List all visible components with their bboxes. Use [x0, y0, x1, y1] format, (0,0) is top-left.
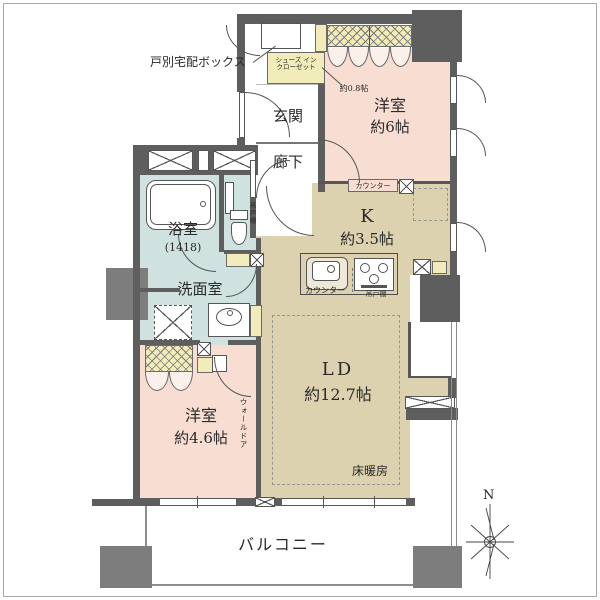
- pillar-bottom-left: [100, 546, 152, 588]
- wall-right-d: [450, 252, 457, 275]
- burner: [360, 263, 370, 273]
- wall-door-label: ウォールドア: [235, 390, 247, 456]
- floor-heating-label: 床暖房: [346, 465, 394, 479]
- room-ld-bay: [410, 378, 450, 398]
- bathtub-drain: [200, 201, 206, 207]
- genkan-tile-line: [256, 84, 318, 85]
- refrigerator-space: [413, 188, 448, 221]
- pillar-left: [106, 268, 148, 320]
- kitchen-faucet: [327, 265, 335, 273]
- wall-washroom-bedroom-b: [228, 340, 256, 345]
- bedroom-main-window-gap: [450, 129, 457, 157]
- washroom-name: 洗面室: [165, 281, 235, 298]
- kitchen-service-door-gap: [450, 223, 457, 252]
- kitchen-right-xbox: [413, 259, 431, 275]
- counter-end-xbox: [399, 179, 414, 194]
- grill: [361, 285, 387, 288]
- ld-window: [282, 498, 406, 506]
- compass: N: [456, 484, 524, 584]
- compass-star: [466, 504, 514, 579]
- wall-right-b: [450, 104, 457, 129]
- wall-block-right-mid: [420, 275, 460, 322]
- wall-right-a: [450, 62, 457, 76]
- shoe-closet-label-2: クローゼット: [277, 63, 316, 71]
- bathroom-size: (1418): [160, 242, 206, 255]
- kitchen-size: 約3.5帖: [330, 231, 404, 248]
- wall-entry-left-lower: [237, 138, 245, 145]
- washroom-storage-xbox: [154, 305, 192, 340]
- cupboard-leader-line: [352, 268, 354, 292]
- burner: [369, 274, 379, 284]
- compass-north-label: N: [483, 488, 494, 503]
- wall-bay-top: [408, 376, 452, 378]
- ld-name: LD: [316, 360, 360, 381]
- delivery-box-label: 戸別宅配ボックス: [150, 56, 256, 70]
- stove: [354, 258, 394, 291]
- bedroom-main-name: 洋室: [358, 97, 422, 115]
- delivery-box: [261, 23, 301, 49]
- wall-ld-right: [408, 322, 411, 378]
- bedroom-second-window: [160, 498, 236, 506]
- balcony-label: バルコニー: [233, 536, 333, 554]
- bedroom-second-cabinet: [197, 357, 213, 373]
- washroom-door-leaf: [250, 160, 256, 198]
- shoe-in-closet: シューズ イン クローゼット: [267, 52, 325, 84]
- closet-divider: [369, 25, 370, 47]
- window-tick: [323, 496, 324, 508]
- burner: [378, 263, 388, 273]
- counter-lower-label: カウンター: [303, 286, 347, 295]
- wall-bath-toilet: [219, 175, 224, 252]
- wall-right-c: [450, 157, 457, 223]
- wall-ld-left: [256, 238, 261, 503]
- bedroom-second-name: 洋室: [170, 407, 232, 425]
- window-tick: [374, 496, 375, 508]
- kitchen-cupboard-label: 吊戸棚: [358, 290, 394, 298]
- washroom-cabinet: [250, 305, 262, 337]
- bedroom-second-closet: [145, 345, 193, 372]
- balcony-rail-bottom: [145, 584, 458, 586]
- bottom-wall-xbox: [255, 497, 275, 507]
- bay-window-xbox: [405, 396, 455, 409]
- pipe-shaft-narrow: [198, 150, 209, 171]
- kitchen-sink: [312, 261, 340, 281]
- shoe-closet-strip: [315, 24, 327, 52]
- wall-stub-left: [92, 499, 133, 506]
- window-tick: [197, 496, 198, 508]
- kitchen-name: K: [350, 207, 384, 228]
- bathroom-name: 浴室: [160, 221, 206, 238]
- floor-plan: シューズ イン クローゼット カウンター: [0, 0, 600, 600]
- wall-bottom-c: [406, 498, 415, 506]
- washroom-faucet: [227, 310, 233, 316]
- wall-bottom-a: [133, 498, 160, 506]
- wall-block-top-right: [412, 10, 462, 62]
- wall-left: [133, 175, 140, 506]
- counter-upper-label: カウンター: [349, 182, 397, 190]
- corridor-label: 廊下: [262, 154, 314, 171]
- ld-size: 約12.7帖: [294, 386, 382, 404]
- pillar-bottom-right: [413, 546, 462, 588]
- genkan-step-line: [256, 142, 318, 144]
- bedroom-main-window-gap: [450, 76, 457, 104]
- genkan-label: 玄関: [262, 108, 314, 125]
- toilet-cupboard-label: 吊戸棚: [243, 194, 255, 232]
- pipe-shaft-xbox-1: [148, 150, 193, 171]
- bedroom-second-xbox: [197, 342, 211, 356]
- bedroom-second-size: 約4.6帖: [164, 430, 238, 447]
- shoe-closet-size-label: 約0.8帖: [332, 84, 376, 93]
- kitchen-side-cabinet: [432, 261, 447, 274]
- bedroom-main-size: 約6帖: [356, 119, 424, 136]
